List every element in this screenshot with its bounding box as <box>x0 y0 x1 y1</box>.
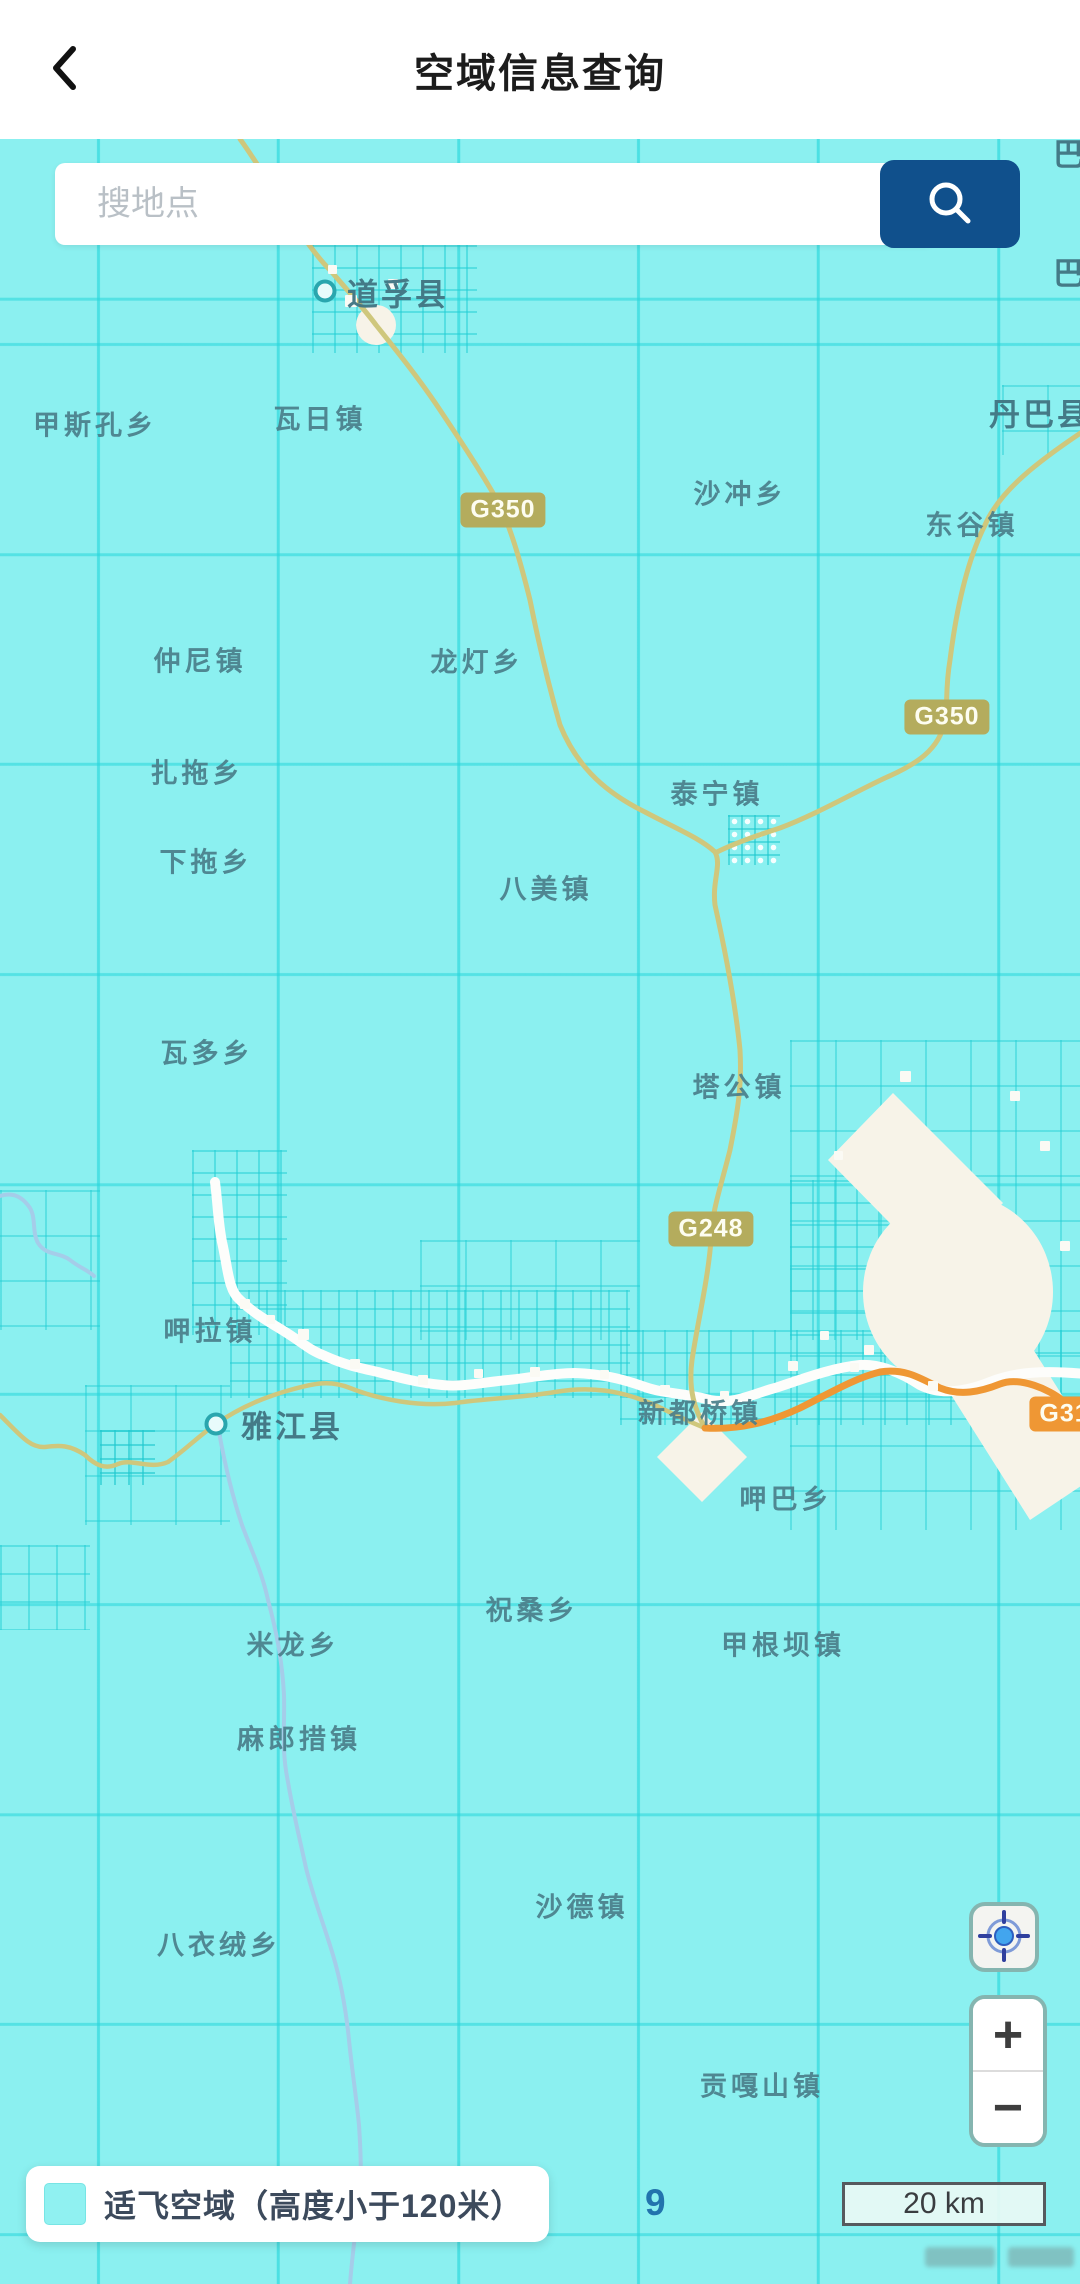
excluded-cell <box>328 265 337 274</box>
excluded-cell <box>1060 1241 1070 1251</box>
excluded-cell <box>388 279 398 289</box>
excluded-cell <box>1010 1091 1020 1101</box>
legend: 适飞空域（高度小于120米） <box>26 2166 549 2242</box>
search-bar <box>55 160 1020 248</box>
zoom-out-button[interactable]: − <box>973 2072 1043 2143</box>
excluded-cell <box>928 1381 938 1391</box>
excluded-cell <box>864 1345 874 1355</box>
city-marker <box>314 280 337 303</box>
road-south <box>0 1383 705 1466</box>
excluded-cell <box>788 1361 798 1371</box>
road-badge: G350 <box>904 700 989 735</box>
page-title: 空域信息查询 <box>414 41 666 99</box>
excluded-cell <box>850 1363 859 1372</box>
search-input[interactable] <box>55 163 935 245</box>
zoom-control: + − <box>969 1995 1047 2147</box>
excluded-cell <box>660 1385 670 1395</box>
excluded-cell <box>834 1151 843 1160</box>
search-icon <box>924 177 976 232</box>
map-attribution-blur <box>925 2247 995 2267</box>
river <box>0 1195 94 1277</box>
road-g350-branch <box>717 430 1080 852</box>
map-attribution-blur <box>1008 2247 1074 2267</box>
legend-label: 适飞空域（高度小于120米） <box>104 2181 523 2227</box>
legend-swatch <box>44 2183 86 2225</box>
excluded-cell <box>474 1369 483 1378</box>
road-g350 <box>240 139 741 1428</box>
map-canvas[interactable]: 道孚县瓦日镇甲斯孔乡丹巴县巴巴沙冲乡东谷镇仲尼镇龙灯乡扎拖乡泰宁镇下拖乡八美镇瓦… <box>0 139 1080 2284</box>
road-badge: G318 <box>1029 1397 1080 1432</box>
back-chevron-icon <box>49 44 79 97</box>
map-features-layer <box>0 139 1080 2284</box>
locate-crosshair-icon <box>977 1909 1031 1966</box>
map-scale-bar: 20 km <box>842 2182 1046 2226</box>
excluded-cell <box>900 1071 911 1082</box>
excluded-cell <box>345 295 357 307</box>
excluded-cell <box>418 1375 428 1385</box>
search-button[interactable] <box>880 160 1020 248</box>
road-badge: G350 <box>460 493 545 528</box>
back-button[interactable] <box>40 46 88 94</box>
excluded-cell <box>240 1299 250 1309</box>
excluded-cell <box>350 1359 360 1369</box>
excluded-cell <box>530 1367 540 1377</box>
excluded-cell <box>266 1315 275 1324</box>
header: 空域信息查询 <box>0 0 1080 139</box>
excluded-cell <box>720 1391 729 1400</box>
excluded-cell <box>1040 1141 1050 1151</box>
excluded-cell <box>600 1370 609 1379</box>
locate-button[interactable] <box>969 1902 1039 1972</box>
zoom-in-button[interactable]: + <box>973 1999 1043 2070</box>
city-marker <box>205 1413 228 1436</box>
excluded-cell <box>820 1331 829 1340</box>
excluded-cell <box>298 1329 309 1340</box>
zoom-level-indicator: 9 <box>645 2182 666 2224</box>
map-scale-label: 20 km <box>903 2187 985 2221</box>
stream <box>219 1432 361 2284</box>
road-badge: G248 <box>668 1212 753 1247</box>
